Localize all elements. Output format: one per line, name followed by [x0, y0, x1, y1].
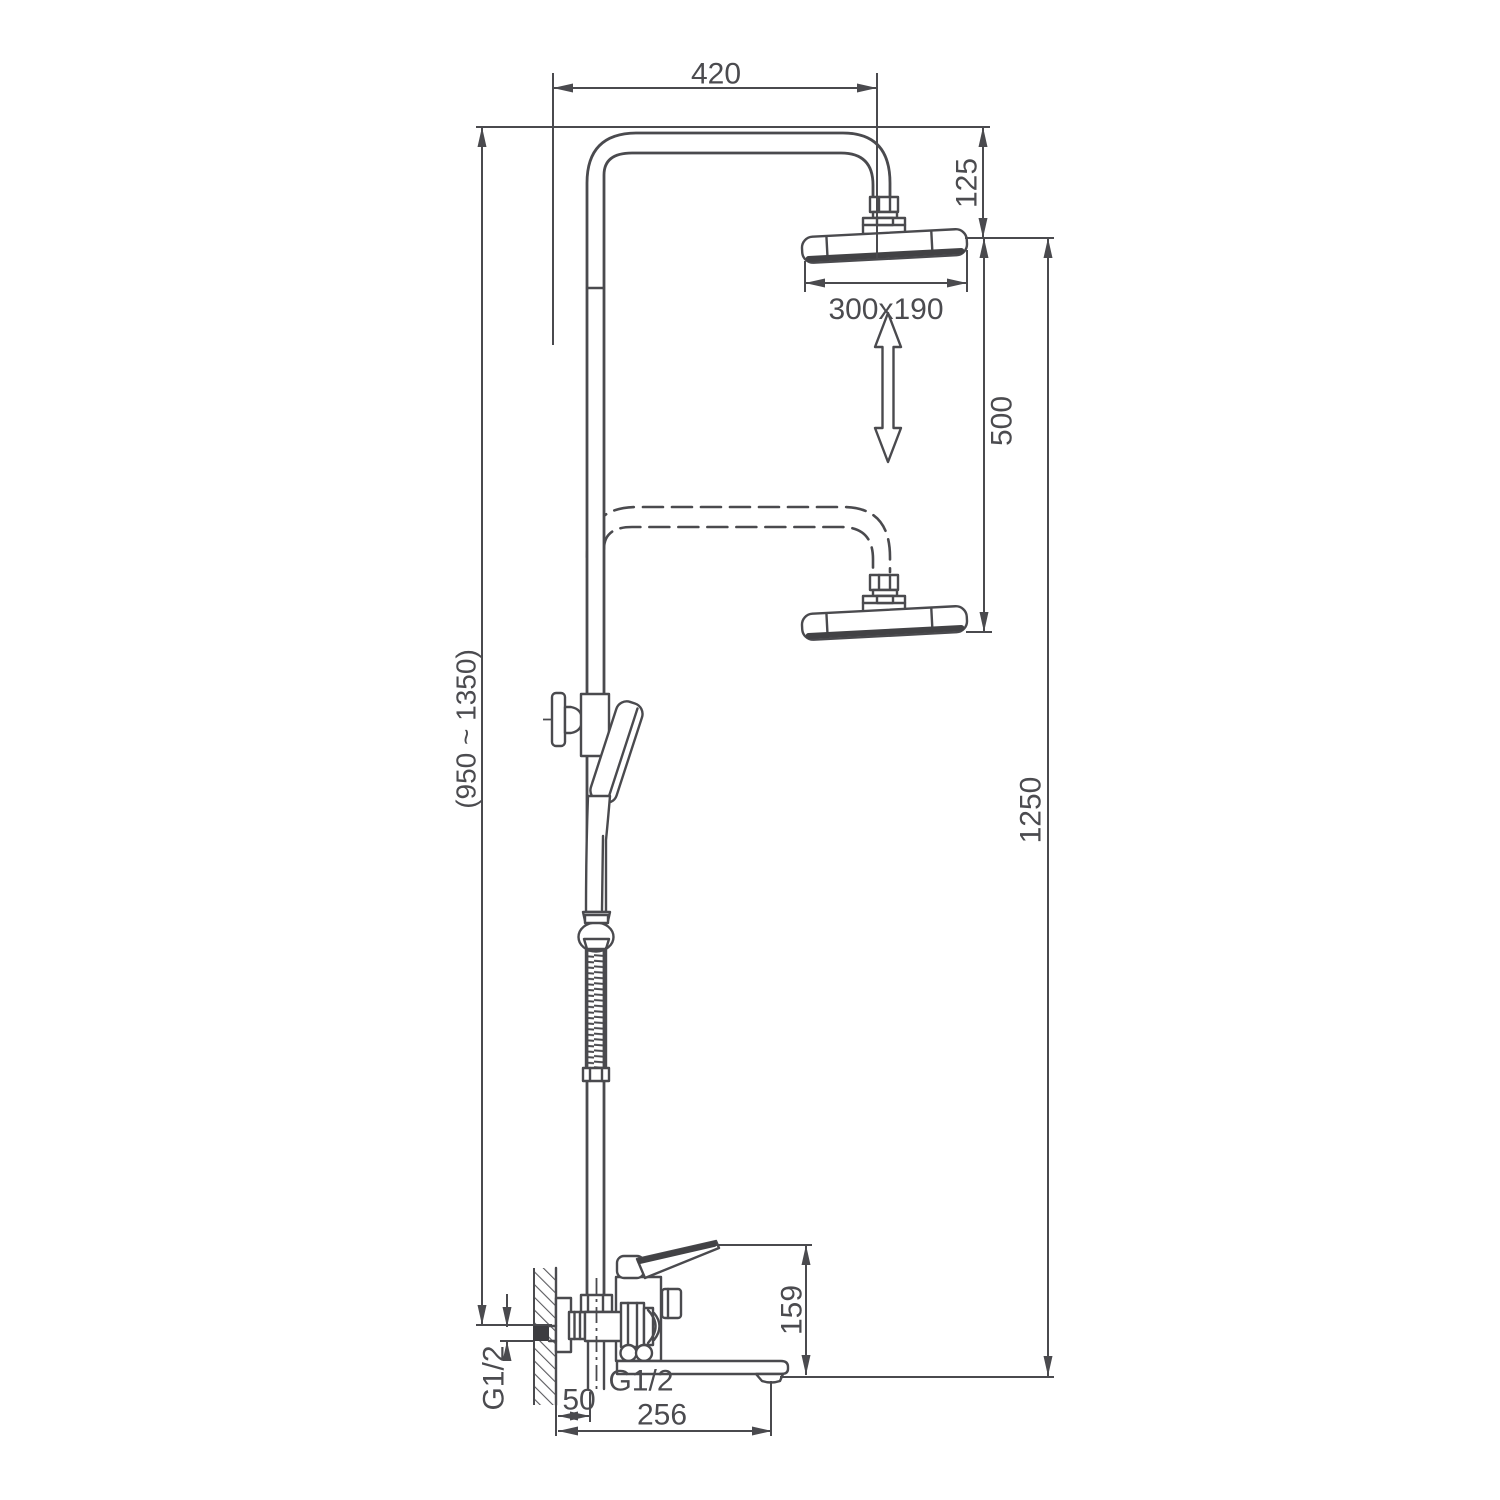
- aerator-ring-right: [636, 1345, 652, 1361]
- wall-inlet-stub: [533, 1326, 549, 1341]
- bracket-knob-disc: [552, 693, 565, 746]
- dim-label-950-1350: (950 ~ 1350): [451, 649, 482, 809]
- lowered-shower-head: [801, 606, 967, 641]
- dim-head-size: 300x190: [805, 279, 967, 326]
- dim-label-420: 420: [691, 58, 741, 91]
- dim-arm-reach: 420: [553, 58, 877, 93]
- dim-label-g12-outlet: G1/2: [608, 1365, 673, 1398]
- height-adjust-double-arrow-icon: [875, 313, 901, 462]
- hand-shower-handle: [586, 796, 610, 912]
- arm-nut: [870, 197, 898, 212]
- spout-outlet-foot: [756, 1374, 783, 1383]
- dim-height-adjustment: 500: [980, 238, 1019, 632]
- dim-wall-offset: 50: [558, 1384, 596, 1421]
- dim-spout-height: 159: [776, 1245, 811, 1375]
- hose-nut: [583, 1068, 609, 1081]
- aerator-ring-left: [621, 1345, 637, 1361]
- dim-label-159: 159: [776, 1285, 809, 1335]
- overhead-shower-head: [801, 229, 967, 264]
- dim-column-height: 1250: [1015, 238, 1053, 1376]
- dim-label-256: 256: [637, 1399, 687, 1432]
- shower-system-dimension-drawing: 420 125 300x190 500 1250: [0, 0, 1500, 1500]
- dimension-layer: 420 125 300x190 500 1250: [451, 58, 1055, 1437]
- corrugated-hose: [586, 948, 606, 1068]
- hand-shower-bracket: [543, 693, 609, 756]
- hose-assembly: [579, 915, 614, 1081]
- dim-label-1250: 1250: [1015, 777, 1048, 844]
- inlet-hex-nut: [569, 1312, 585, 1339]
- phantom-arm-lower-position: [587, 507, 890, 572]
- dim-label-300x190: 300x190: [828, 293, 943, 326]
- dim-label-g12-inlet: G1/2: [478, 1345, 511, 1410]
- dim-label-125: 125: [951, 158, 984, 208]
- tee-body: [585, 1312, 622, 1341]
- diverter-valve-nut: [621, 1303, 644, 1347]
- bracket-knob-cone: [565, 707, 582, 733]
- lowered-shower-connector: [863, 575, 905, 612]
- head-mount-detail: [877, 218, 893, 225]
- dim-label-500: 500: [986, 396, 1019, 446]
- dim-label-50: 50: [562, 1384, 595, 1417]
- pipe-mask: [588, 500, 603, 600]
- overhead-shower-connector: [863, 197, 905, 234]
- ball-joint-cap: [585, 915, 608, 923]
- dim-head-offset: 125: [951, 127, 988, 238]
- technical-drawing-page: 420 125 300x190 500 1250: [0, 0, 1500, 1500]
- mixer-assembly: [533, 1241, 788, 1383]
- arm-inner-line: [604, 153, 873, 1341]
- dim-riser-height-range: (950 ~ 1350): [451, 127, 487, 1325]
- diverter-knob: [662, 1289, 681, 1318]
